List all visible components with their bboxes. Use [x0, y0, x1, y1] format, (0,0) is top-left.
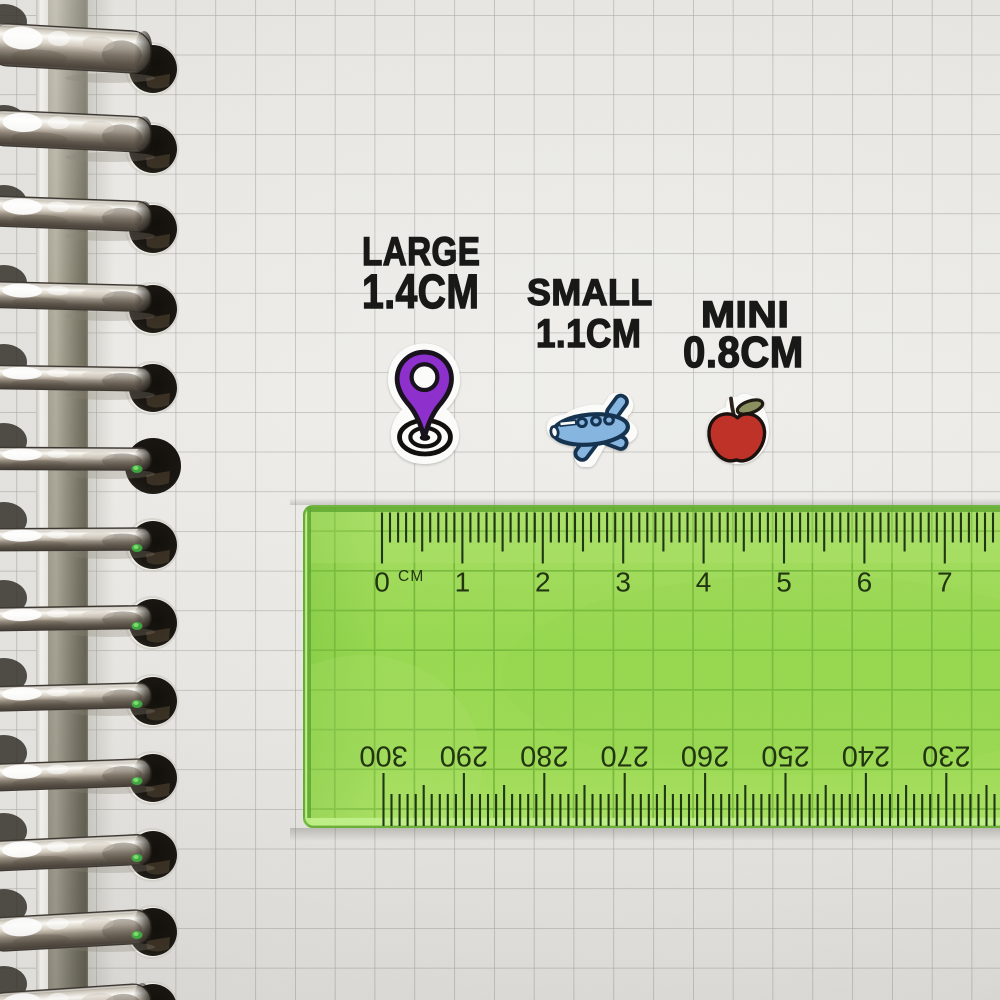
svg-text:CM: CM	[398, 568, 425, 585]
svg-text:230: 230	[922, 740, 970, 772]
svg-text:5: 5	[776, 567, 792, 598]
svg-text:260: 260	[681, 740, 729, 772]
svg-text:250: 250	[761, 740, 809, 772]
svg-text:4: 4	[696, 567, 712, 598]
svg-text:6: 6	[857, 567, 873, 598]
svg-text:0: 0	[374, 567, 390, 598]
svg-text:3: 3	[615, 567, 631, 598]
svg-text:290: 290	[440, 740, 488, 772]
svg-text:270: 270	[601, 740, 649, 772]
svg-text:240: 240	[842, 740, 890, 772]
svg-text:2: 2	[535, 567, 551, 598]
svg-text:7: 7	[937, 567, 953, 598]
svg-text:280: 280	[520, 740, 568, 772]
svg-text:1: 1	[455, 567, 471, 598]
svg-text:300: 300	[359, 740, 407, 772]
